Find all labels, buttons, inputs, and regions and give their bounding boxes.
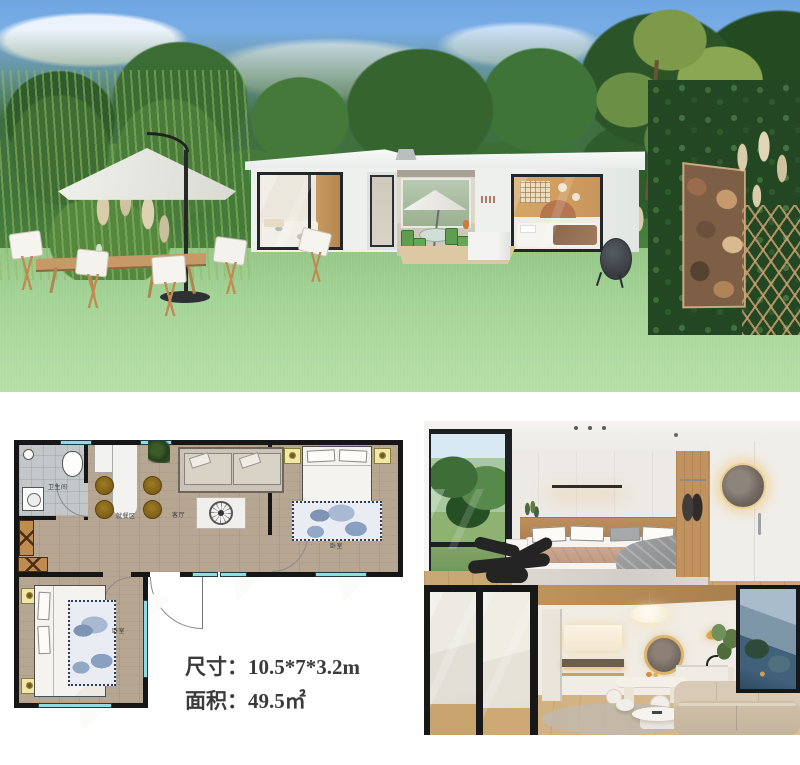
dining-chair <box>143 476 162 495</box>
spec-area-label: 面积： <box>185 684 248 718</box>
exterior-photo <box>0 0 800 392</box>
wardrobe-handle <box>758 513 761 535</box>
interior-door <box>542 609 562 701</box>
cabinet <box>19 520 34 556</box>
wardrobe <box>710 441 800 581</box>
vanity-shelf <box>562 673 624 676</box>
spec-area-value: 49.5㎡ <box>248 689 306 713</box>
window <box>143 600 148 678</box>
wall-lamp <box>552 485 622 488</box>
listing-image: 卫生间 就餐区 客厅 卧室 卧室 尺寸：10.5*7*3.2m 面积：49.5㎡ <box>0 0 800 765</box>
grey-pillow <box>610 526 640 541</box>
roof <box>245 148 645 170</box>
room-label-bedroom-right: 卧室 <box>330 544 343 550</box>
plant-sprig <box>522 501 540 521</box>
speaker <box>600 238 632 280</box>
glass-doors <box>424 585 538 735</box>
cabinet <box>18 557 48 572</box>
fruit-bowl <box>646 672 652 677</box>
spec-dimensions-value: 10.5*7*3.2m <box>248 655 360 679</box>
pillow <box>570 525 605 541</box>
wall-right <box>398 440 403 577</box>
black-chair <box>486 567 528 583</box>
room-label-bathroom: 卫生间 <box>48 485 68 491</box>
spotlight <box>674 433 678 437</box>
bedroom-left-rug <box>68 600 116 686</box>
spec-text: 尺寸：10.5*7*3.2m 面积：49.5㎡ <box>185 650 360 718</box>
nightstand <box>284 448 301 464</box>
casement-marker <box>78 708 108 730</box>
bedroom-right-rug <box>292 501 382 541</box>
patio-vase <box>463 220 469 229</box>
dining-counter-wing <box>94 445 113 473</box>
dining-counter <box>112 445 138 519</box>
spotlight <box>588 426 592 430</box>
vanity-mirror <box>564 625 622 651</box>
spec-area: 面积：49.5㎡ <box>185 684 360 718</box>
window <box>60 440 92 445</box>
vanity-counter <box>562 659 624 667</box>
spec-dimensions-label: 尺寸： <box>185 650 248 684</box>
nightstand <box>374 448 391 464</box>
pendant-lamp <box>630 605 670 623</box>
casement-marker <box>232 577 260 602</box>
sofa <box>178 447 284 493</box>
right-bedroom-window <box>511 174 603 252</box>
window <box>38 703 112 708</box>
planter-wall <box>468 232 510 260</box>
spotlight <box>602 426 606 430</box>
camp-chair <box>151 255 187 285</box>
entry-door-exterior <box>367 172 397 250</box>
plant <box>148 441 170 463</box>
window <box>220 572 247 577</box>
room-label-living: 客厅 <box>172 513 185 519</box>
room-label-bedroom-left: 卧室 <box>112 629 125 635</box>
bedroom-photo <box>424 421 800 585</box>
hanging-clothes <box>680 479 706 529</box>
spec-dimensions: 尺寸：10.5*7*3.2m <box>185 650 360 684</box>
dining-chair <box>95 476 114 495</box>
pampas-right <box>728 130 800 240</box>
toilet <box>62 451 83 477</box>
sink <box>23 449 34 460</box>
window <box>315 572 367 577</box>
patio <box>397 170 475 256</box>
spotlight <box>574 426 578 430</box>
dining-chair <box>143 500 162 519</box>
entry-door-leaf <box>202 577 203 629</box>
room-label-dining: 就餐区 <box>116 514 136 520</box>
right-window <box>736 585 800 693</box>
round-mirror <box>720 463 766 509</box>
house-sign <box>481 196 497 203</box>
living-photo <box>424 585 800 735</box>
casement-marker <box>338 577 368 602</box>
dining-chair <box>95 500 114 519</box>
